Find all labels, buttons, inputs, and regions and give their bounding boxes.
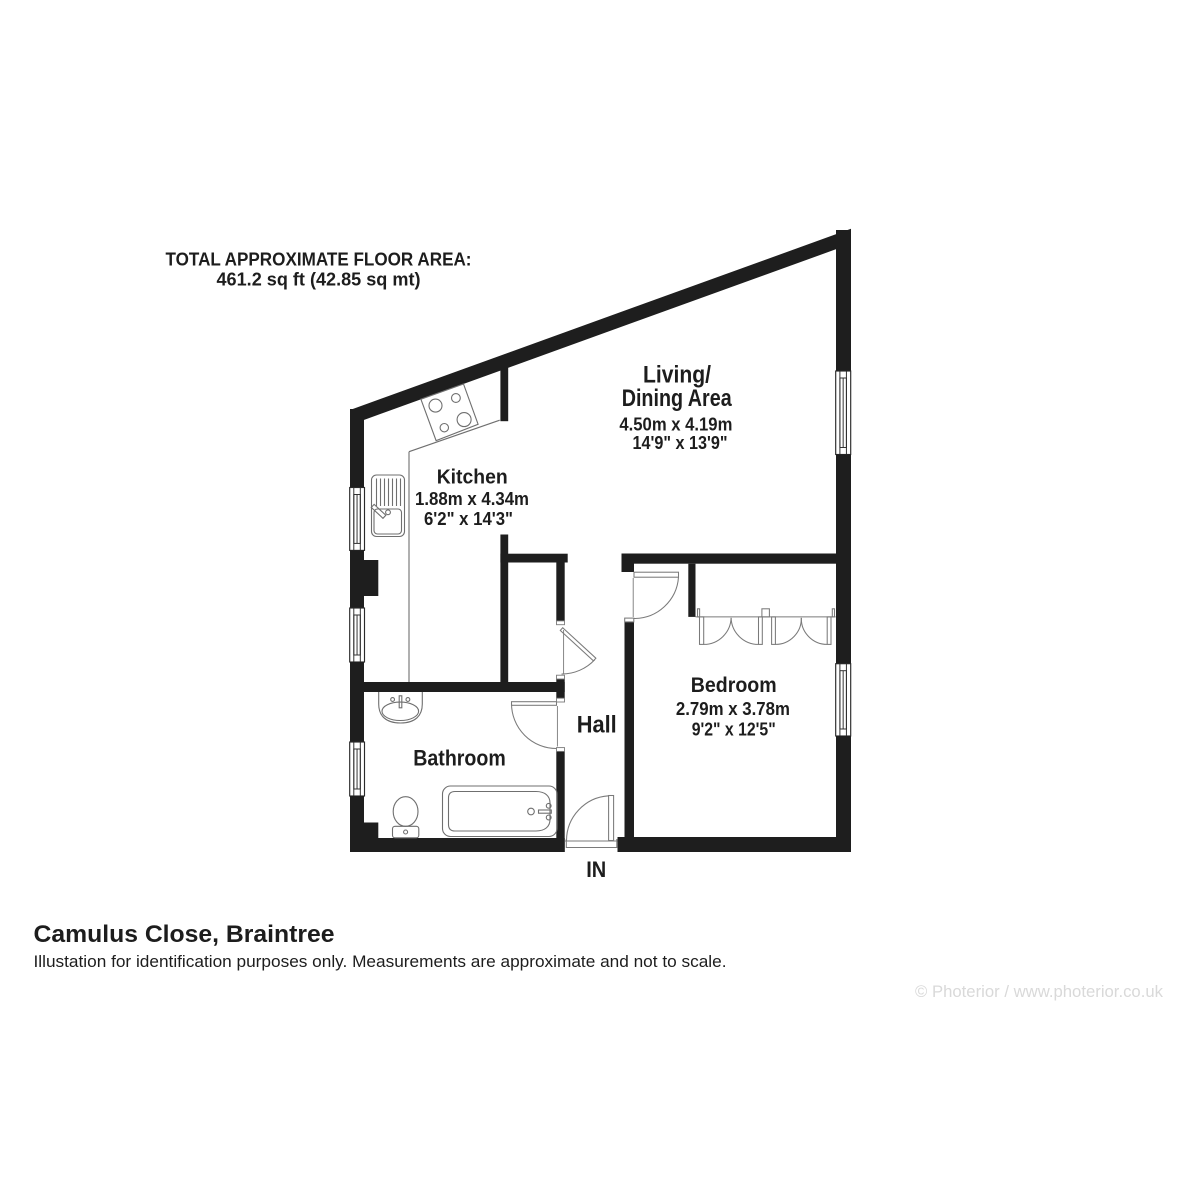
svg-text:9'2" x 12'5": 9'2" x 12'5" — [692, 719, 776, 739]
svg-text:Camulus Close, Braintree: Camulus Close, Braintree — [34, 921, 335, 948]
svg-text:4.50m x 4.19m: 4.50m x 4.19m — [619, 415, 732, 435]
svg-text:Bedroom: Bedroom — [691, 673, 777, 697]
svg-text:Hall: Hall — [577, 712, 617, 739]
svg-text:Kitchen: Kitchen — [437, 466, 508, 489]
svg-text:TOTAL APPROXIMATE FLOOR AREA:: TOTAL APPROXIMATE FLOOR AREA: — [166, 249, 472, 270]
svg-text:© Photerior / www.photerior.co: © Photerior / www.photerior.co.uk — [915, 983, 1164, 1001]
svg-text:1.88m x 4.34m: 1.88m x 4.34m — [415, 489, 529, 509]
svg-text:IN: IN — [586, 857, 606, 882]
svg-text:Dining Area: Dining Area — [622, 385, 733, 412]
svg-text:14'9" x 13'9": 14'9" x 13'9" — [633, 433, 728, 453]
svg-text:461.2 sq ft (42.85 sq mt): 461.2 sq ft (42.85 sq mt) — [217, 269, 421, 290]
svg-text:Illustation for identification: Illustation for identification purposes … — [34, 953, 727, 971]
svg-text:Bathroom: Bathroom — [413, 746, 506, 771]
svg-text:2.79m x 3.78m: 2.79m x 3.78m — [676, 699, 790, 719]
svg-text:6'2" x 14'3": 6'2" x 14'3" — [424, 509, 513, 529]
